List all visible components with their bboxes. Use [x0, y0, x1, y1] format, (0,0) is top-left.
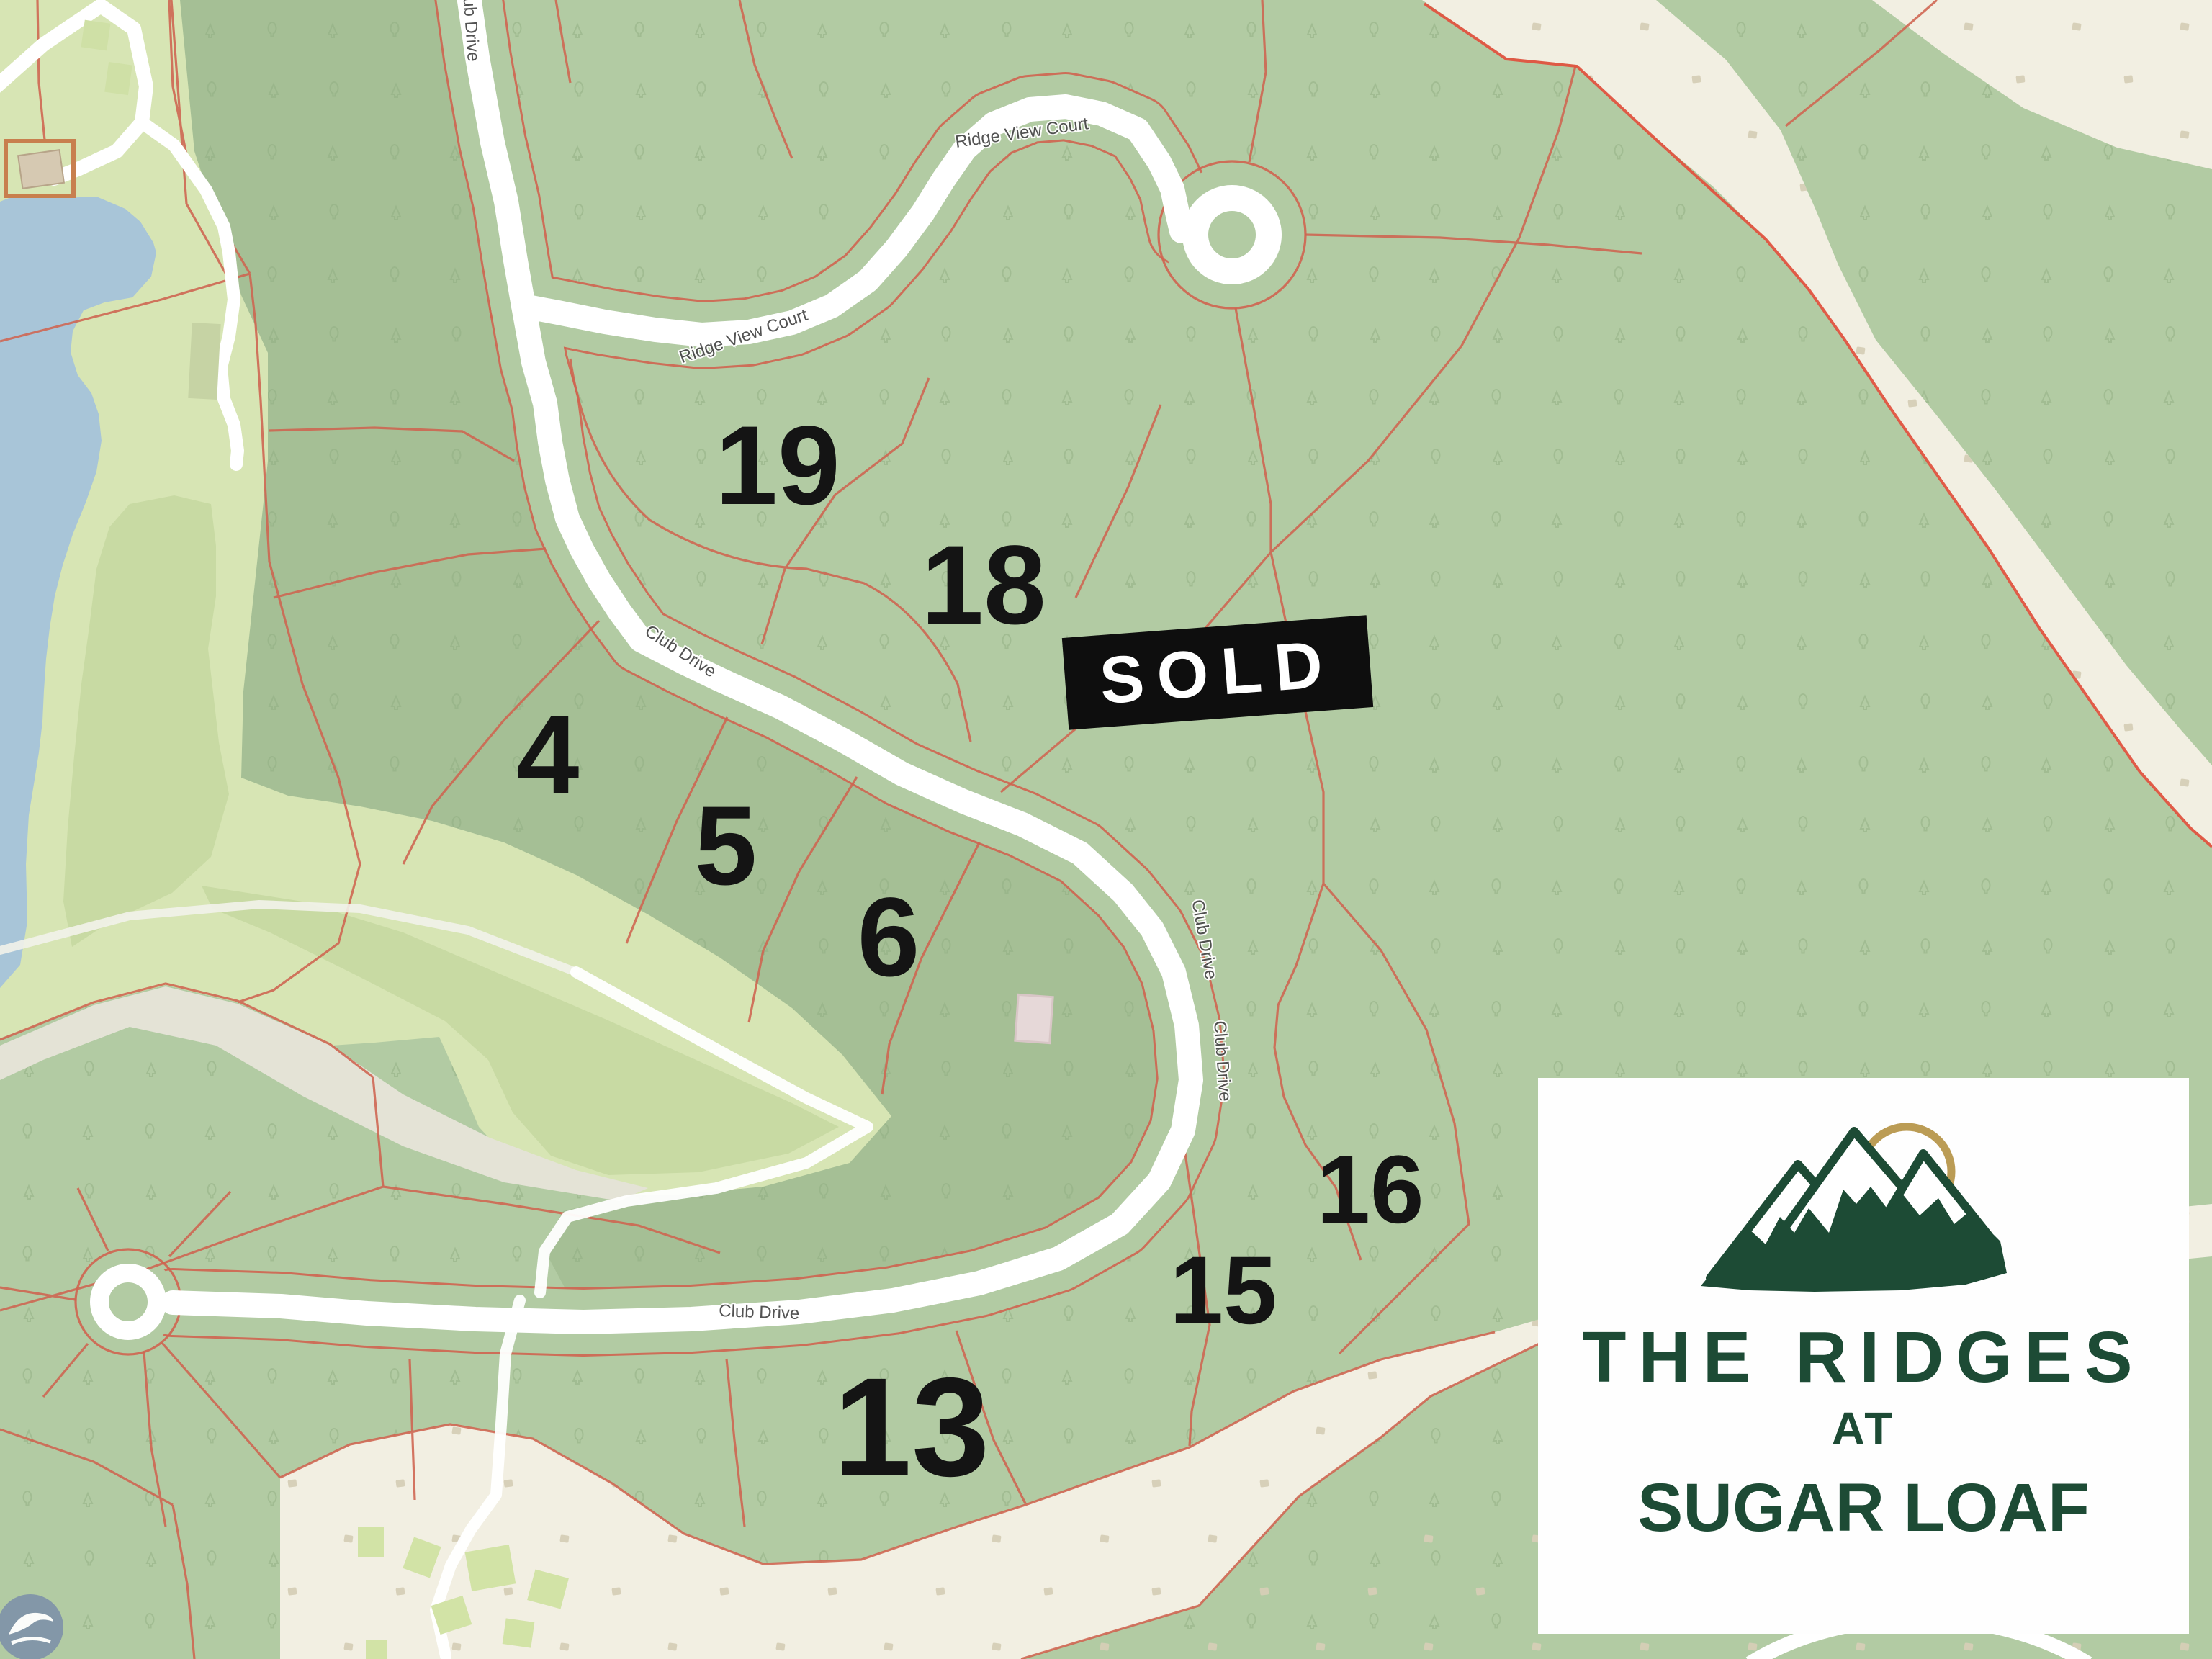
svg-text:16: 16: [1316, 1136, 1424, 1244]
svg-text:6: 6: [858, 875, 920, 1000]
svg-text:19: 19: [715, 403, 840, 529]
svg-text:4: 4: [517, 693, 580, 818]
svg-text:5: 5: [695, 783, 757, 909]
svg-text:Club Drive: Club Drive: [719, 1301, 800, 1323]
svg-text:15: 15: [1169, 1237, 1277, 1344]
svg-text:13: 13: [834, 1349, 990, 1506]
svg-text:THE RIDGES: THE RIDGES: [1582, 1317, 2144, 1398]
svg-text:SUGAR LOAF: SUGAR LOAF: [1637, 1470, 2090, 1546]
svg-text:18: 18: [921, 523, 1046, 648]
svg-text:AT: AT: [1832, 1403, 1896, 1455]
